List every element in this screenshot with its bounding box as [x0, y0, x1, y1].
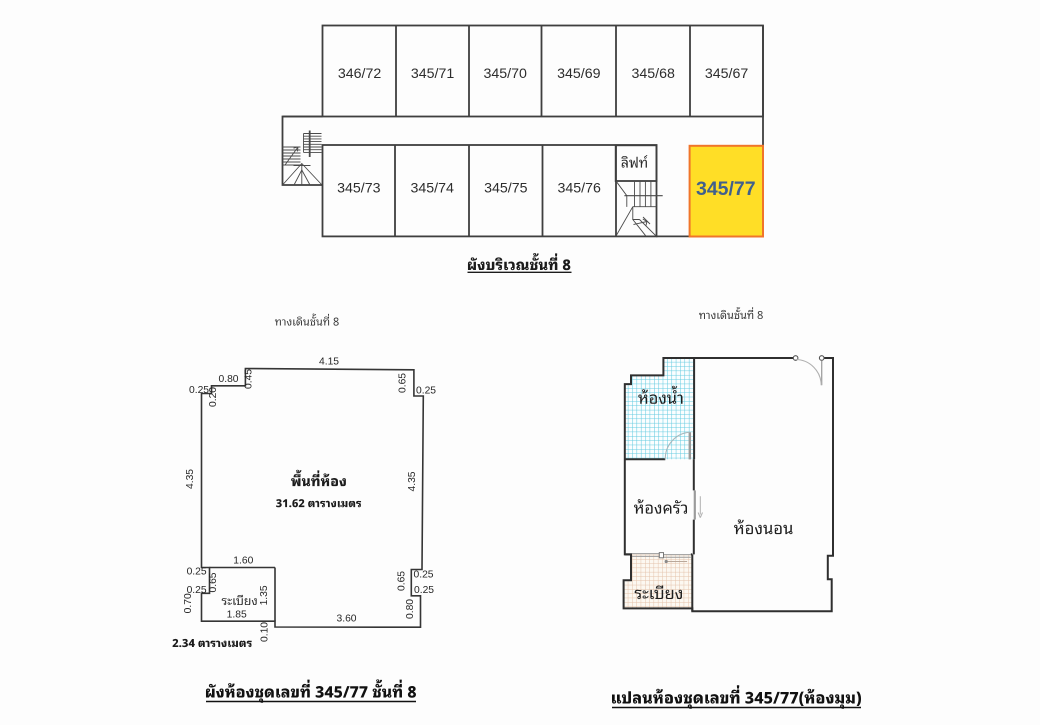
svg-text:345/77: 345/77 [696, 178, 756, 200]
svg-text:0.45: 0.45 [244, 369, 255, 389]
svg-text:0.10: 0.10 [260, 622, 271, 642]
svg-text:345/69: 345/69 [557, 66, 601, 82]
svg-text:0.20: 0.20 [208, 387, 219, 407]
svg-text:345/71: 345/71 [411, 66, 455, 82]
svg-text:346/72: 346/72 [338, 66, 382, 82]
svg-text:345/73: 345/73 [337, 180, 381, 196]
svg-text:345/70: 345/70 [483, 66, 527, 82]
svg-text:0.25: 0.25 [189, 385, 209, 396]
svg-text:1.60: 1.60 [233, 556, 253, 567]
svg-text:345/74: 345/74 [410, 180, 454, 196]
svg-text:345/75: 345/75 [484, 180, 528, 196]
svg-text:345/76: 345/76 [557, 180, 601, 196]
svg-text:3.60: 3.60 [336, 614, 356, 625]
svg-text:4.35: 4.35 [407, 471, 418, 491]
svg-text:0.25: 0.25 [416, 386, 436, 397]
svg-text:0.70: 0.70 [183, 593, 194, 613]
svg-text:0.80: 0.80 [405, 599, 416, 619]
svg-text:0.65: 0.65 [397, 571, 408, 591]
svg-text:345/68: 345/68 [631, 66, 675, 82]
svg-text:0.65: 0.65 [208, 572, 219, 592]
svg-text:4.15: 4.15 [319, 357, 339, 368]
svg-text:0.65: 0.65 [398, 373, 409, 393]
svg-text:0.25: 0.25 [187, 567, 207, 578]
svg-text:1.35: 1.35 [259, 585, 270, 605]
svg-text:345/67: 345/67 [705, 66, 749, 82]
svg-text:0.80: 0.80 [218, 374, 238, 385]
svg-text:4.35: 4.35 [185, 469, 196, 489]
svg-text:0.25: 0.25 [414, 585, 434, 596]
svg-text:0.25: 0.25 [413, 570, 433, 581]
svg-text:1.85: 1.85 [227, 610, 247, 621]
